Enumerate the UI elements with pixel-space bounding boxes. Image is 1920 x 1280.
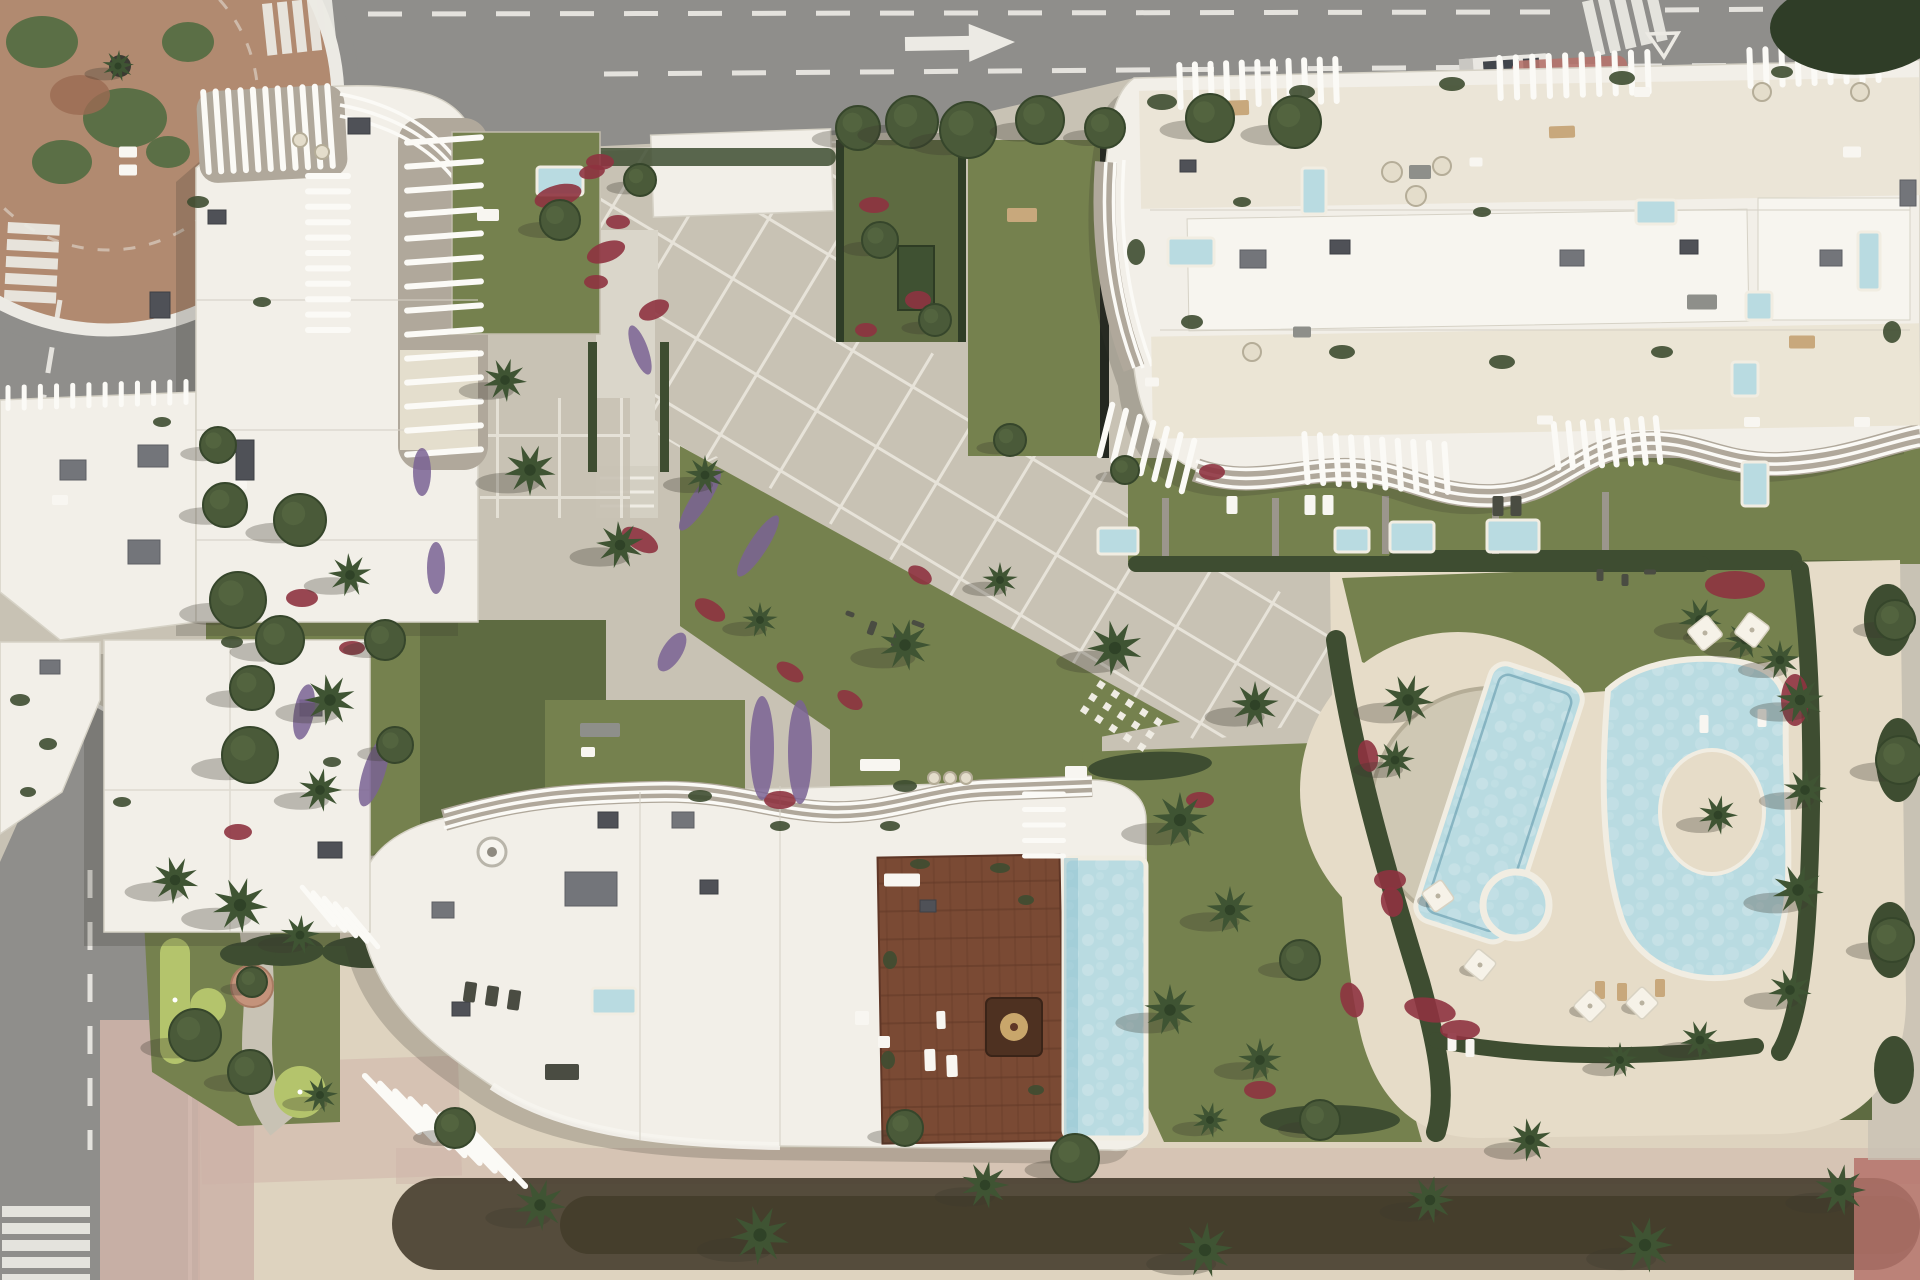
palm-core (114, 62, 121, 69)
tan-furniture (1617, 983, 1627, 1001)
rooftop-unit (150, 292, 170, 318)
white-furniture (1537, 416, 1553, 425)
plunge-pool (1742, 462, 1768, 506)
palm-core (1714, 811, 1723, 820)
white-furniture (878, 1036, 890, 1048)
rooftop-unit (138, 445, 168, 467)
tree-highlight (1286, 946, 1304, 964)
white-furniture (1634, 87, 1650, 97)
privacy-wall (1272, 498, 1279, 556)
garden-hedge (958, 140, 966, 342)
plunge-pool (1636, 200, 1676, 224)
palm-core (1391, 756, 1400, 765)
planter (1609, 71, 1635, 85)
tree-highlight (282, 502, 305, 525)
tree-highlight (629, 169, 643, 183)
rooftop-unit (432, 902, 454, 918)
rooftop-unit (452, 1002, 470, 1016)
tree-highlight (218, 580, 243, 605)
tree-highlight (235, 1057, 255, 1077)
north-lawn (968, 140, 1104, 456)
balcony-fin (167, 380, 172, 406)
flower-bed-red (606, 215, 630, 229)
terrace-lawn-west (545, 700, 745, 792)
planter (910, 859, 930, 869)
tree-highlight (237, 673, 257, 693)
white-furniture (860, 759, 900, 771)
tree-highlight (948, 110, 973, 135)
palm-core (1776, 656, 1785, 665)
planter (1771, 66, 1793, 78)
balcony-fin (305, 235, 351, 241)
parasol-pole (1703, 631, 1708, 636)
palm-core (1795, 695, 1806, 706)
tan-furniture (1007, 208, 1037, 222)
tan-furniture (1789, 336, 1815, 349)
white-furniture (924, 1049, 936, 1071)
balcony-fin (305, 219, 351, 225)
entrance-canopy-roof (651, 129, 834, 217)
rooftop-unit (128, 540, 160, 564)
white-furniture (1744, 417, 1760, 427)
flower-bed-red (859, 197, 889, 213)
plunge-pool (1487, 520, 1539, 552)
white-furniture (1145, 378, 1159, 387)
planter (883, 951, 897, 969)
palm-core (1792, 884, 1803, 895)
zebra-stripe (2, 1240, 90, 1251)
golf-hole (298, 1090, 303, 1095)
tree-highlight (1306, 1106, 1324, 1124)
plunge-pool (1168, 238, 1214, 266)
plunge-pool (1098, 528, 1138, 554)
white-furniture (1323, 495, 1334, 515)
planter (10, 694, 30, 706)
palm-core (1800, 785, 1810, 795)
golf-hole (173, 998, 178, 1003)
tree-highlight (1881, 606, 1899, 624)
parasol-pole (1436, 894, 1441, 899)
white-furniture (946, 1055, 958, 1077)
dark-furniture (545, 1064, 579, 1080)
tree-highlight (210, 490, 230, 510)
tree-highlight (1277, 104, 1300, 127)
flower-bed-red (1244, 1081, 1276, 1099)
planter (39, 738, 57, 750)
privacy-wall (1602, 492, 1609, 550)
tree-highlight (1091, 114, 1109, 132)
planter (1127, 239, 1145, 265)
planter (153, 417, 171, 427)
palm-core (1250, 700, 1261, 711)
dark-furniture (1597, 569, 1604, 581)
round-seat (1382, 162, 1402, 182)
planter (253, 297, 271, 307)
central-roof-slab (1187, 209, 1749, 331)
balcony-fin (305, 327, 351, 333)
roundabout-planting (32, 140, 92, 184)
flower-bed-purple (750, 696, 774, 800)
planter (770, 821, 790, 831)
planter (1329, 345, 1355, 359)
rooftop-unit (672, 812, 694, 828)
zebra-stripe (2, 1257, 90, 1268)
tree-highlight (892, 1115, 908, 1131)
planter (880, 821, 900, 831)
palm-core (1425, 1195, 1436, 1206)
balcony-fin (38, 384, 43, 410)
tree-highlight (1193, 101, 1215, 123)
white-furniture (1470, 158, 1483, 167)
corner-red-paving (1854, 1158, 1920, 1280)
flower-bed-red (584, 275, 608, 289)
palm-core (1164, 1004, 1175, 1015)
palm-core (324, 694, 335, 705)
plunge-pool (1732, 362, 1758, 396)
roundabout-planting (146, 136, 190, 168)
privacy-wall (1162, 498, 1169, 556)
roundabout-planting (162, 22, 214, 62)
white-furniture (1305, 495, 1316, 515)
tree-highlight (441, 1114, 459, 1132)
balcony-fin (1022, 807, 1066, 812)
white-furniture (855, 1011, 869, 1025)
palm-core (534, 1199, 545, 1210)
white-furniture (1843, 147, 1861, 158)
rooftop-unit (1180, 160, 1196, 172)
palm-core (1225, 905, 1236, 916)
palm-core (234, 899, 246, 911)
palm-core (1109, 642, 1121, 654)
tan-furniture (1655, 979, 1665, 997)
rooftop-unit (565, 872, 617, 906)
palm-core (701, 471, 710, 480)
walkway-hedge (588, 342, 597, 472)
rooftop-unit (208, 210, 226, 224)
plunge-pool (1746, 292, 1772, 320)
balcony-fin (54, 383, 59, 409)
rooftop-unit (920, 900, 936, 912)
palm-core (524, 464, 535, 475)
tree-highlight (546, 206, 564, 224)
palm-core (1639, 1239, 1651, 1251)
planter (688, 790, 712, 802)
round-seat (1433, 157, 1451, 175)
flower-bed-red (1374, 870, 1406, 890)
balcony-fin (103, 382, 108, 408)
rooftop-unit (1820, 250, 1842, 266)
balcony-fin (305, 250, 351, 256)
tree-highlight (1877, 925, 1897, 945)
white-furniture (1466, 1039, 1475, 1057)
tree-highlight (371, 626, 389, 644)
tree-highlight (382, 732, 398, 748)
rooftop-unit (318, 842, 342, 858)
rooftop-unit (60, 460, 86, 480)
gray-furniture (580, 723, 620, 737)
rooftop-unit (348, 118, 370, 134)
dark-furniture (1622, 574, 1629, 586)
round-seat (1243, 343, 1261, 361)
white-furniture (52, 495, 68, 505)
tree-highlight (999, 429, 1013, 443)
round-seat (1851, 83, 1869, 101)
flower-bed-red (224, 824, 252, 840)
aerial-render (0, 0, 1920, 1280)
jacuzzi (1483, 872, 1549, 938)
aerial-render-stage (0, 0, 1920, 1280)
palm-core (170, 875, 181, 886)
planter (1028, 1085, 1044, 1095)
planter (1018, 895, 1034, 905)
palm-core (756, 616, 764, 624)
balcony-fin (6, 385, 11, 411)
white-furniture (1700, 715, 1709, 733)
flower-bed-purple (413, 448, 431, 496)
parasol-pole (1478, 963, 1483, 968)
flower-bed-purple (427, 542, 445, 594)
planter (1439, 77, 1465, 91)
balcony-fin (151, 380, 156, 406)
tan-furniture (1549, 126, 1575, 139)
planter (187, 196, 209, 208)
white-furniture (884, 874, 920, 887)
balcony-fin (1022, 823, 1066, 828)
rooftop-unit (40, 660, 60, 674)
tree-highlight (242, 972, 256, 986)
walkway-hedge (660, 342, 669, 472)
dark-furniture (1493, 496, 1504, 516)
planter (1147, 94, 1177, 110)
round-seat (1406, 186, 1426, 206)
tree-highlight (1115, 460, 1128, 473)
rooftop-unit (1240, 250, 1266, 268)
planter (1473, 207, 1491, 217)
tree-highlight (263, 623, 285, 645)
round-seat (928, 772, 940, 784)
zebra-stripe (2, 1223, 90, 1234)
rooftop-unit (1680, 240, 1698, 254)
palm-core (500, 375, 510, 385)
balcony-fin (86, 382, 91, 408)
tree-highlight (1883, 743, 1905, 765)
building-a-west-wing (0, 392, 196, 640)
palm-core (345, 570, 355, 580)
palm-core (1402, 694, 1413, 705)
east-hedge (1874, 1036, 1914, 1104)
planter (20, 787, 36, 797)
tree-highlight (843, 113, 863, 133)
white-furniture (1065, 766, 1087, 778)
round-seat (1753, 83, 1771, 101)
privacy-wall (1382, 496, 1389, 554)
palm-core (1206, 1116, 1214, 1124)
gray-furniture (1409, 165, 1431, 179)
balcony-fin (70, 383, 75, 409)
balcony-fin (305, 312, 351, 318)
palm-core (1616, 1056, 1624, 1064)
palm-core (315, 785, 325, 795)
garden-hedge-row (1128, 556, 1710, 572)
flower-bed-red (1440, 1020, 1480, 1040)
flower-bed-red (764, 791, 796, 809)
white-furniture (1227, 496, 1238, 514)
roundabout-gravel (50, 75, 110, 115)
palm-core (1785, 985, 1795, 995)
palm-core (753, 1228, 766, 1241)
white-furniture (119, 165, 137, 176)
white-furniture (119, 147, 137, 158)
planter (1651, 346, 1673, 358)
planter (1181, 315, 1203, 329)
palm-core (980, 1180, 991, 1191)
plunge-pool (592, 988, 636, 1014)
planter (1233, 197, 1251, 207)
palm-core (1696, 1036, 1705, 1045)
flower-bed-purple (788, 700, 812, 804)
garden-hedge (836, 140, 844, 342)
rooftop-unit (236, 440, 254, 480)
dark-furniture (1644, 570, 1656, 575)
palm-core (996, 576, 1004, 584)
balcony-fin (184, 379, 189, 405)
round-seat (315, 145, 329, 159)
balcony-fin (305, 281, 351, 287)
spiral-stair-core (487, 847, 497, 857)
tree-highlight (924, 309, 938, 323)
gray-furniture (1293, 327, 1311, 338)
palm-core (615, 540, 626, 551)
planter (1883, 321, 1901, 343)
white-furniture (1854, 417, 1870, 427)
planter (113, 797, 131, 807)
dark-furniture (1511, 496, 1522, 516)
balcony-fin (1022, 838, 1066, 843)
white-furniture (936, 1011, 946, 1029)
balcony-fin (1022, 792, 1066, 797)
balcony-fin (22, 384, 27, 410)
gray-furniture (1687, 295, 1717, 310)
tree-highlight (230, 735, 255, 760)
palm-core (1199, 1244, 1211, 1256)
white-furniture (581, 747, 595, 757)
zebra-stripe (2, 1274, 90, 1280)
tree-highlight (1023, 103, 1045, 125)
balcony-fin (305, 188, 351, 194)
flower-bed-red (1199, 464, 1225, 480)
planter (1489, 355, 1515, 369)
palm-core (1255, 1055, 1265, 1065)
rooftop-unit (700, 880, 718, 894)
palm-core (899, 639, 910, 650)
balcony-fin (305, 173, 351, 179)
balcony-fin (305, 265, 351, 271)
balcony-fin (305, 296, 351, 302)
tree-highlight (894, 104, 917, 127)
parasol-pole (1588, 1004, 1593, 1009)
palm-core (1525, 1135, 1535, 1145)
tree-highlight (867, 227, 883, 243)
round-seat (960, 772, 972, 784)
rooftop-unit (1900, 180, 1916, 206)
planter (323, 757, 341, 767)
plunge-pool (1858, 232, 1880, 290)
balcony-fin (1022, 854, 1066, 859)
balcony-fin (119, 381, 124, 407)
palm-core (1834, 1184, 1845, 1195)
white-furniture (477, 209, 499, 221)
planter (881, 1051, 895, 1069)
parasol-pole (1640, 1001, 1645, 1006)
palm-core (1174, 814, 1186, 826)
palm-core (296, 931, 305, 940)
balcony-fin (305, 204, 351, 210)
flower-bed-red (586, 154, 614, 170)
round-seat (944, 772, 956, 784)
rooftop-unit (598, 812, 618, 828)
rooftop-unit (1560, 250, 1584, 266)
rooftop-unit (1330, 240, 1350, 254)
balcony-fin (135, 381, 140, 407)
flower-bed-red (1705, 571, 1765, 599)
parasol-pole (1750, 628, 1755, 633)
roundabout-planting (6, 16, 78, 68)
planter (893, 780, 917, 792)
planter (990, 863, 1010, 873)
flower-bed-red (855, 323, 877, 337)
plunge-pool (1390, 522, 1434, 552)
tree-highlight (205, 432, 221, 448)
round-seat (293, 133, 307, 147)
tree-highlight (177, 1017, 200, 1040)
plunge-pool (1335, 528, 1369, 552)
firepit-center (1010, 1023, 1018, 1031)
plunge-pool (1302, 168, 1326, 214)
palm-core (316, 1091, 324, 1099)
tree-highlight (1058, 1141, 1080, 1163)
penthouse-pool-edge (1064, 858, 1078, 1138)
zebra-stripe (2, 1206, 90, 1217)
west-terrace-plaza (480, 398, 630, 518)
